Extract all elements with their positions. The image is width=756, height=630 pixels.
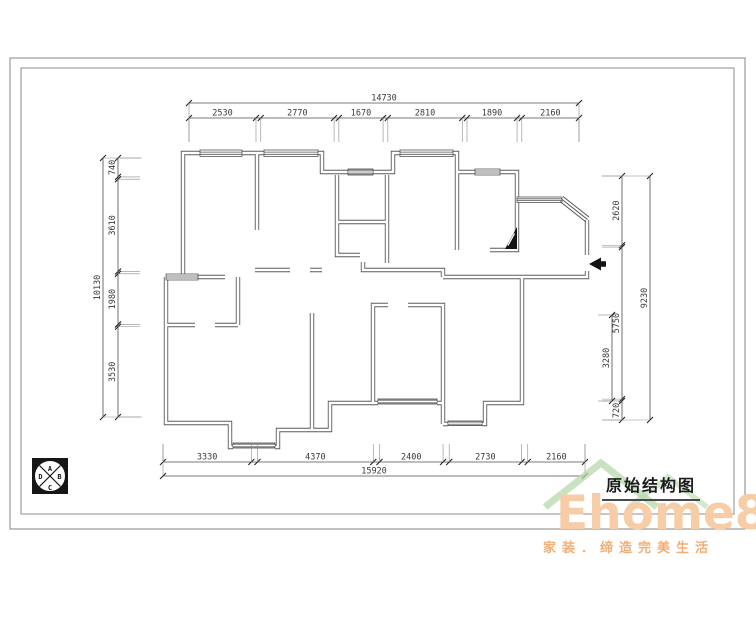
entrance-arrow-icon bbox=[589, 258, 606, 271]
dimension-value: 3530 bbox=[108, 362, 118, 382]
elevation-label-d: D bbox=[38, 473, 42, 481]
dimension-value: 2400 bbox=[401, 453, 421, 463]
inner-border bbox=[21, 68, 734, 514]
dimension-value: 2770 bbox=[287, 109, 307, 119]
dimension-value: 15920 bbox=[361, 467, 387, 477]
watermark-tagline: 家装．缔造完美生活 bbox=[543, 537, 714, 556]
elevation-label-b: B bbox=[57, 473, 61, 481]
outer-border bbox=[10, 58, 745, 529]
dimension-value: 2810 bbox=[415, 109, 435, 119]
dimension-value: 10130 bbox=[93, 275, 103, 301]
dimension-value: 740 bbox=[108, 160, 118, 175]
dimension-value: 2160 bbox=[546, 453, 566, 463]
dimension-value: 1670 bbox=[351, 109, 371, 119]
dimension-value: 9230 bbox=[640, 288, 650, 308]
dimension-value: 1890 bbox=[482, 109, 502, 119]
dimension-value: 5750 bbox=[612, 313, 622, 333]
dimension-value: 2530 bbox=[212, 109, 232, 119]
dimension-value: 4370 bbox=[305, 453, 325, 463]
drawing-sheet: A B C D 25302770167028101890216014730333… bbox=[0, 0, 756, 630]
dimension-value: 1980 bbox=[108, 289, 118, 309]
dimension-value: 3610 bbox=[108, 215, 118, 235]
bay-window bbox=[560, 197, 589, 223]
elevation-index-symbol: A B C D bbox=[32, 458, 68, 494]
dimension-value: 14730 bbox=[371, 94, 397, 104]
dimension-value: 3330 bbox=[197, 453, 217, 463]
flue-symbol bbox=[505, 227, 517, 249]
dimension-value: 2160 bbox=[540, 109, 560, 119]
dimension-value: 3280 bbox=[602, 348, 612, 368]
dimension-value: 720 bbox=[612, 403, 622, 418]
elevation-label-c: C bbox=[48, 484, 52, 492]
dimension-value: 2730 bbox=[475, 453, 495, 463]
dimension-value: 2620 bbox=[612, 200, 622, 220]
drawing-title: 原始结构图 bbox=[602, 472, 700, 501]
